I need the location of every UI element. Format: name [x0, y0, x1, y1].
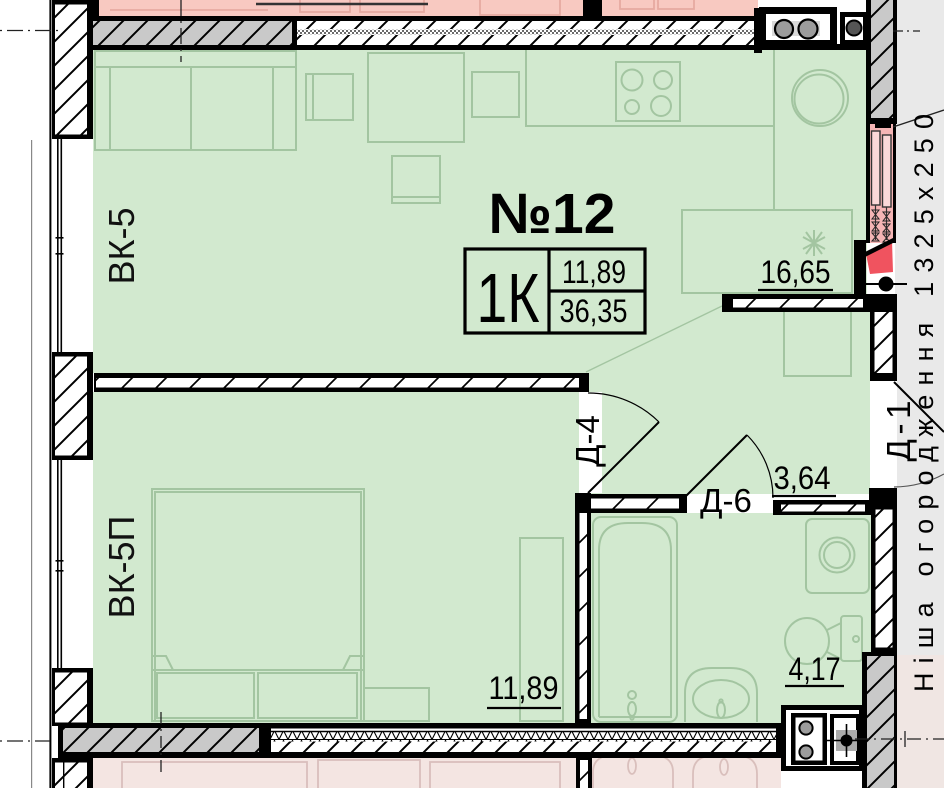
svg-text:1К: 1К	[477, 260, 540, 338]
svg-text:№12: №12	[489, 182, 616, 246]
svg-text:36,35: 36,35	[560, 294, 628, 330]
svg-text:Д-4: Д-4	[569, 415, 606, 467]
svg-text:ВК-5П: ВК-5П	[101, 516, 142, 619]
svg-text:11,89: 11,89	[562, 255, 626, 291]
svg-text:Ніша огородження 1325х250: Ніша огородження 1325х250	[909, 114, 939, 692]
svg-text:16,65: 16,65	[761, 255, 831, 290]
svg-text:11,89: 11,89	[489, 671, 559, 707]
svg-text:4,17: 4,17	[789, 652, 841, 688]
svg-text:Д-6: Д-6	[700, 482, 752, 519]
svg-text:3,64: 3,64	[774, 461, 831, 496]
svg-text:ВК-5: ВК-5	[101, 208, 142, 285]
